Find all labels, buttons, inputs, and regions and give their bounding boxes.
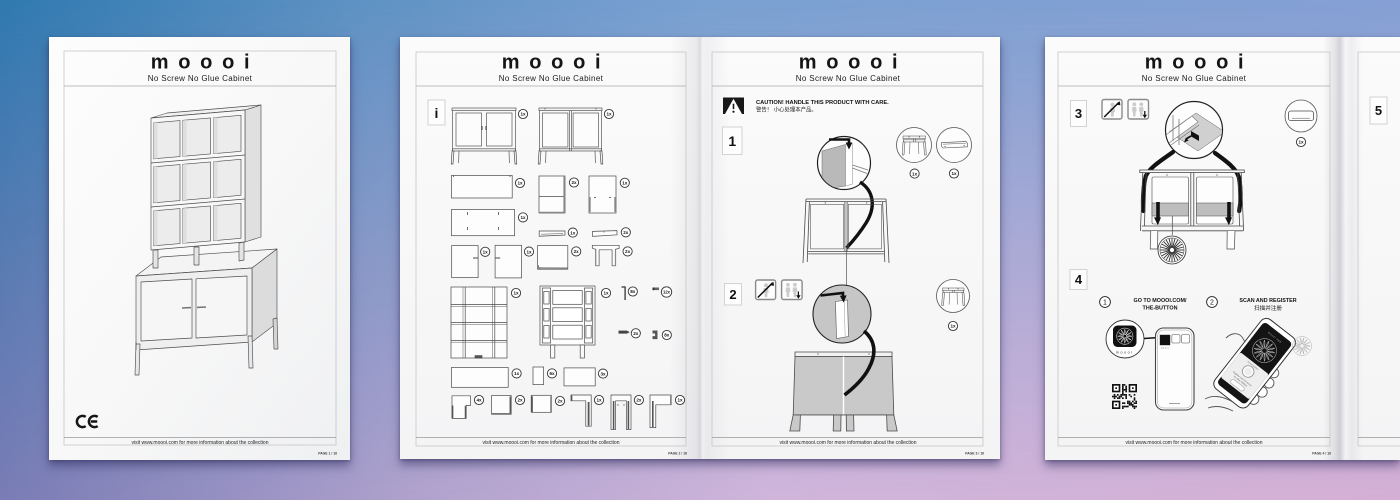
svg-text:moooi: moooi: [799, 52, 908, 74]
svg-text:1x: 1x: [513, 291, 519, 296]
svg-text:1x: 1x: [520, 112, 526, 117]
svg-text:1x: 1x: [677, 398, 683, 403]
svg-text:1x: 1x: [514, 371, 520, 376]
svg-text:i: i: [435, 105, 439, 121]
svg-text:CAUTION! HANDLE THIS PRODUCT W: CAUTION! HANDLE THIS PRODUCT WITH CARE.: [756, 100, 889, 106]
svg-text:1x: 1x: [596, 398, 602, 403]
svg-text:2x: 2x: [633, 331, 639, 336]
svg-text:PAGE 2 / 16: PAGE 2 / 16: [668, 452, 687, 456]
svg-text:6x: 6x: [549, 371, 555, 376]
svg-text:visit www.moooi.com for more i: visit www.moooi.com for more information…: [1125, 440, 1262, 446]
svg-text:1x: 1x: [570, 230, 576, 235]
svg-text:5: 5: [1375, 103, 1382, 118]
svg-text:8x: 8x: [630, 289, 636, 294]
svg-text:PAGE 4 / 16: PAGE 4 / 16: [1312, 452, 1331, 456]
svg-text:visit www.moooi.com for more i: visit www.moooi.com for more information…: [779, 440, 916, 446]
svg-text:2x: 2x: [636, 398, 642, 403]
svg-text:2x: 2x: [574, 249, 580, 254]
svg-text:THE-BUTTON: THE-BUTTON: [1143, 306, 1178, 312]
svg-text:2: 2: [1210, 300, 1214, 307]
svg-text:3x: 3x: [600, 371, 606, 376]
svg-text:4: 4: [1075, 272, 1083, 287]
svg-text:12x: 12x: [663, 290, 671, 295]
svg-text:扫描并注册: 扫描并注册: [1254, 304, 1282, 312]
svg-text:1x: 1x: [951, 171, 957, 176]
svg-text:moooi: moooi: [1145, 52, 1254, 74]
svg-text:PAGE 1 / 16: PAGE 1 / 16: [318, 452, 337, 456]
svg-text:警告！ 小心处理本产品。: 警告！ 小心处理本产品。: [756, 106, 817, 114]
svg-text:2x: 2x: [557, 399, 563, 404]
svg-text:PAGE 3 / 16: PAGE 3 / 16: [965, 452, 984, 456]
svg-text:1x: 1x: [603, 291, 609, 296]
svg-text:No Screw No Glue Cabinet: No Screw No Glue Cabinet: [148, 74, 253, 83]
svg-text:visit www.moooi.com for more i: visit www.moooi.com for more information…: [131, 440, 268, 446]
svg-text:1: 1: [1103, 300, 1107, 307]
svg-text:4x: 4x: [476, 398, 482, 403]
svg-text:1x: 1x: [950, 324, 956, 329]
svg-text:GO TO MOOOI.COM/: GO TO MOOOI.COM/: [1134, 298, 1187, 304]
svg-text:2: 2: [729, 287, 736, 302]
svg-text:moooi: moooi: [502, 52, 611, 74]
svg-text:SCAN AND REGISTER: SCAN AND REGISTER: [1239, 298, 1296, 304]
svg-text:1x: 1x: [912, 171, 918, 176]
svg-text:visit www.moooi.com for more i: visit www.moooi.com for more information…: [482, 440, 619, 446]
svg-text:8x: 8x: [664, 333, 670, 338]
svg-text:1x: 1x: [622, 180, 628, 185]
svg-text:2x: 2x: [625, 249, 631, 254]
svg-text:2x: 2x: [517, 398, 523, 403]
svg-text:1: 1: [728, 133, 736, 149]
svg-text:moooi: moooi: [1161, 347, 1169, 349]
svg-text:moooi: moooi: [1116, 350, 1134, 354]
svg-text:1x: 1x: [526, 249, 532, 254]
svg-text:No Screw No Glue Cabinet: No Screw No Glue Cabinet: [1142, 74, 1247, 83]
svg-text:No Screw No Glue Cabinet: No Screw No Glue Cabinet: [796, 74, 901, 83]
svg-text:No Screw No Glue Cabinet: No Screw No Glue Cabinet: [499, 74, 604, 83]
svg-text:1x: 1x: [517, 181, 523, 186]
svg-text:1x: 1x: [606, 112, 612, 117]
svg-text:moooi: moooi: [151, 52, 260, 74]
svg-text:2x: 2x: [623, 230, 629, 235]
svg-text:1x: 1x: [483, 249, 489, 254]
svg-text:1x: 1x: [520, 215, 526, 220]
svg-text:1x: 1x: [1298, 140, 1304, 145]
svg-text:3: 3: [1075, 106, 1082, 121]
svg-text:2x: 2x: [571, 180, 577, 185]
